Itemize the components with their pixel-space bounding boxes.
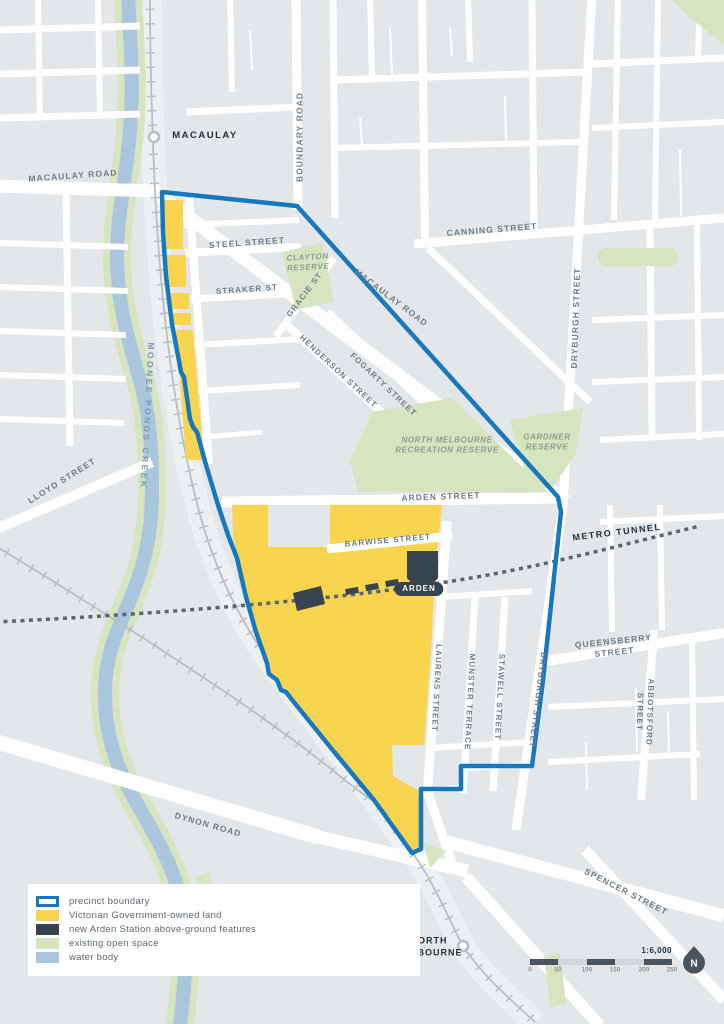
arden-station-block (407, 551, 438, 586)
scale-segment (558, 959, 586, 965)
legend-row: existing open space (36, 936, 420, 950)
langford-strip-3 (171, 293, 189, 309)
gray-notch (268, 505, 330, 547)
north-arrow: N (680, 944, 708, 978)
scale-tick: 50 (554, 967, 561, 974)
legend: precinct boundary Victorian Government-o… (28, 884, 420, 976)
scale-segment (587, 959, 615, 965)
legend-label: water body (69, 952, 118, 963)
legend-row: new Arden Station above-ground features (36, 922, 420, 936)
north-melbourne-station-marker (458, 941, 468, 951)
langford-strip-2 (167, 255, 186, 287)
scale-segment (530, 959, 558, 965)
legend-row: precinct boundary (36, 894, 420, 908)
legend-swatch (36, 938, 59, 949)
langford-strip-1 (164, 200, 183, 249)
legend-label: Victorian Government-owned land (69, 910, 222, 921)
macaulay-station-marker (149, 132, 159, 142)
legend-label: new Arden Station above-ground features (69, 924, 256, 935)
legend-row: water body (36, 950, 420, 964)
scale-segments (530, 959, 672, 965)
scale-segment (644, 959, 672, 965)
scale-ratio-label: 1:6,000 (641, 946, 672, 955)
green-strip (598, 248, 678, 266)
legend-swatch (36, 952, 59, 963)
arden-precinct-map: MACAULAY ROADBOUNDARY ROADSTEEL STREETST… (0, 0, 724, 1024)
scale-tick: 200 (639, 967, 650, 974)
legend-row: Victorian Government-owned land (36, 908, 420, 922)
legend-label: existing open space (69, 938, 159, 949)
legend-swatch (36, 896, 59, 907)
scale-tick: 100 (582, 967, 593, 974)
legend-swatch (36, 910, 59, 921)
legend-label: precinct boundary (69, 896, 150, 907)
langford-strip-4 (173, 313, 191, 325)
scale-tick: 150 (610, 967, 621, 974)
map-canvas (0, 0, 724, 1024)
scale-tick: 250 (667, 967, 678, 974)
scale-segment (615, 959, 643, 965)
scale-tick: 0 (528, 967, 532, 974)
north-arrow-letter: N (690, 959, 697, 970)
scale-bar: 1:6,000 050100150200250 (530, 946, 672, 978)
legend-swatch (36, 924, 59, 935)
